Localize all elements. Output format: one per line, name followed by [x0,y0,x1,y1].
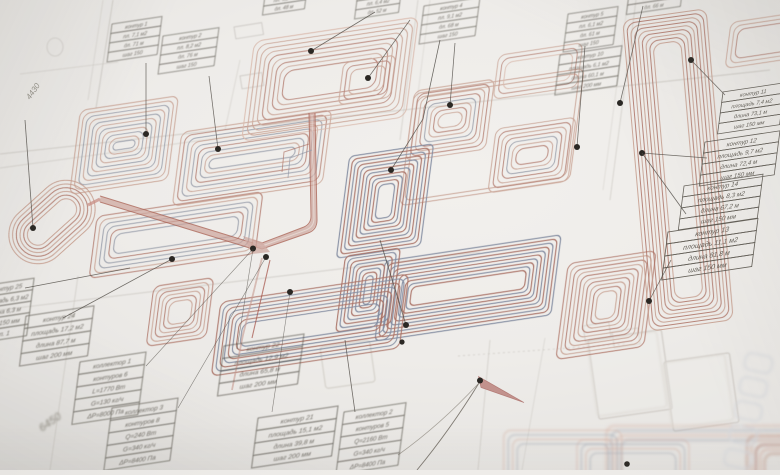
svg-text:шаг 150: шаг 150 [176,62,197,71]
svg-text:6450: 6450 [37,410,65,434]
svg-text:контуров 6: контуров 6 [93,371,129,383]
svg-text:L=1770 Вт: L=1770 Вт [92,384,126,396]
svg-text:контур 5: контур 5 [581,11,604,20]
svg-text:дл. 71 м: дл. 71 м [124,41,145,50]
svg-text:коллектор 1: коллектор 1 [93,358,132,371]
svg-text:ΔР=8400 Па: ΔР=8400 Па [348,459,386,470]
svg-text:G=130 кг/ч: G=130 кг/ч [91,396,125,408]
svg-text:длина 6,3 м: длина 6,3 м [0,306,22,318]
svg-text:G=340 кг/ч: G=340 кг/ч [122,442,156,454]
svg-text:шаг 200 мм: шаг 200 мм [36,350,73,362]
svg-text:контур 22: контур 22 [246,342,280,354]
svg-text:шаг 150: шаг 150 [437,32,458,41]
svg-text:контур 24: контур 24 [43,313,76,325]
svg-text:дл. 48 м: дл. 48 м [274,4,294,13]
svg-text:шаг 150: шаг 150 [578,40,599,49]
svg-text:4430: 4430 [24,81,42,101]
svg-text:шаг 150: шаг 150 [122,50,143,59]
svg-text:Q=2160 Вт: Q=2160 Вт [354,434,388,446]
svg-text:ΔР=8400 Па: ΔР=8400 Па [118,454,157,467]
svg-text:Q=240 Вт: Q=240 Вт [125,430,157,442]
svg-text:дл. 66 м: дл. 66 м [644,2,665,11]
svg-text:коллектор 2: коллектор 2 [355,409,393,422]
svg-text:коллектор 3: коллектор 3 [125,404,164,417]
svg-text:дл. 76 м: дл. 76 м [178,52,199,61]
svg-text:контуров 8: контуров 8 [125,417,161,429]
svg-text:контур 4: контур 4 [440,3,463,12]
svg-text:шаг 200 мм: шаг 200 мм [239,379,277,392]
svg-text:контур 21: контур 21 [280,414,314,426]
svg-text:G=340 кг/ч: G=340 кг/ч [353,446,386,458]
svg-text:шаг 200 мм: шаг 200 мм [273,451,311,464]
svg-text:контур 2: контур 2 [179,33,202,42]
svg-text:контуров 5: контуров 5 [355,421,390,433]
svg-text:дл. 61 м: дл. 61 м [580,31,601,40]
svg-text:контур 12: контур 12 [726,137,757,148]
svg-text:дл. 68 м: дл. 68 м [439,22,460,31]
